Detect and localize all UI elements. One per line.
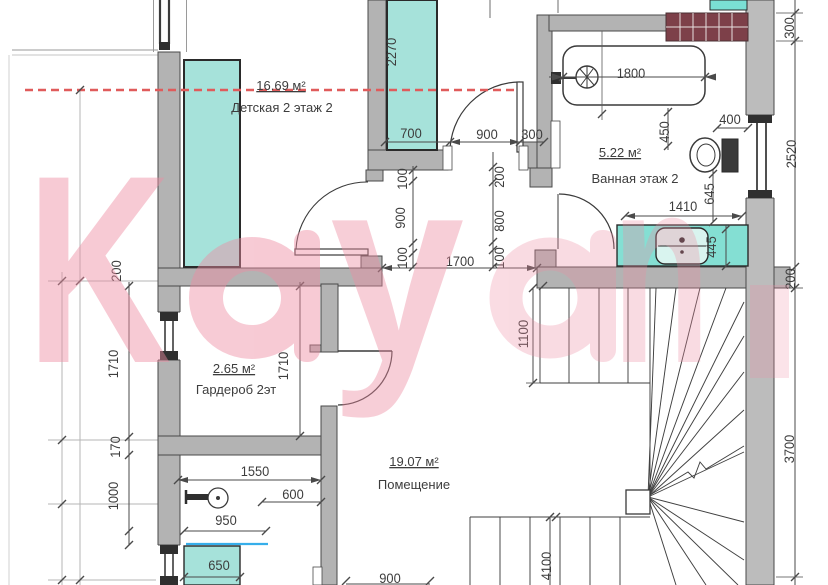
svg-text:1000: 1000 [106,482,121,511]
svg-text:2270: 2270 [384,38,399,67]
svg-text:900: 900 [476,127,498,142]
svg-text:300: 300 [782,17,797,39]
svg-text:400: 400 [719,112,741,127]
svg-text:Гардероб 2эт: Гардероб 2эт [196,382,276,397]
svg-text:300: 300 [521,127,543,142]
svg-text:800: 800 [492,210,507,232]
svg-text:950: 950 [215,513,237,528]
svg-text:1550: 1550 [241,464,270,479]
svg-text:Помещение: Помещение [378,477,450,492]
svg-text:900: 900 [379,571,401,585]
svg-text:600: 600 [282,487,304,502]
svg-text:y: y [330,120,464,420]
svg-text:1800: 1800 [617,66,646,81]
svg-text:K: K [26,121,171,420]
svg-text:170: 170 [108,436,123,458]
svg-text:3700: 3700 [782,435,797,464]
svg-text:19.07 м²: 19.07 м² [389,454,439,469]
svg-text:4100: 4100 [539,552,554,581]
svg-text:16.69 м²: 16.69 м² [256,78,306,93]
svg-text:650: 650 [208,558,230,573]
svg-text:200: 200 [492,166,507,188]
svg-text:2.65 м²: 2.65 м² [213,361,256,376]
svg-text:Детская 2 этаж 2: Детская 2 этаж 2 [231,100,333,115]
svg-text:2520: 2520 [784,140,799,169]
svg-text:n: n [612,119,710,419]
svg-text:1710: 1710 [276,352,291,381]
